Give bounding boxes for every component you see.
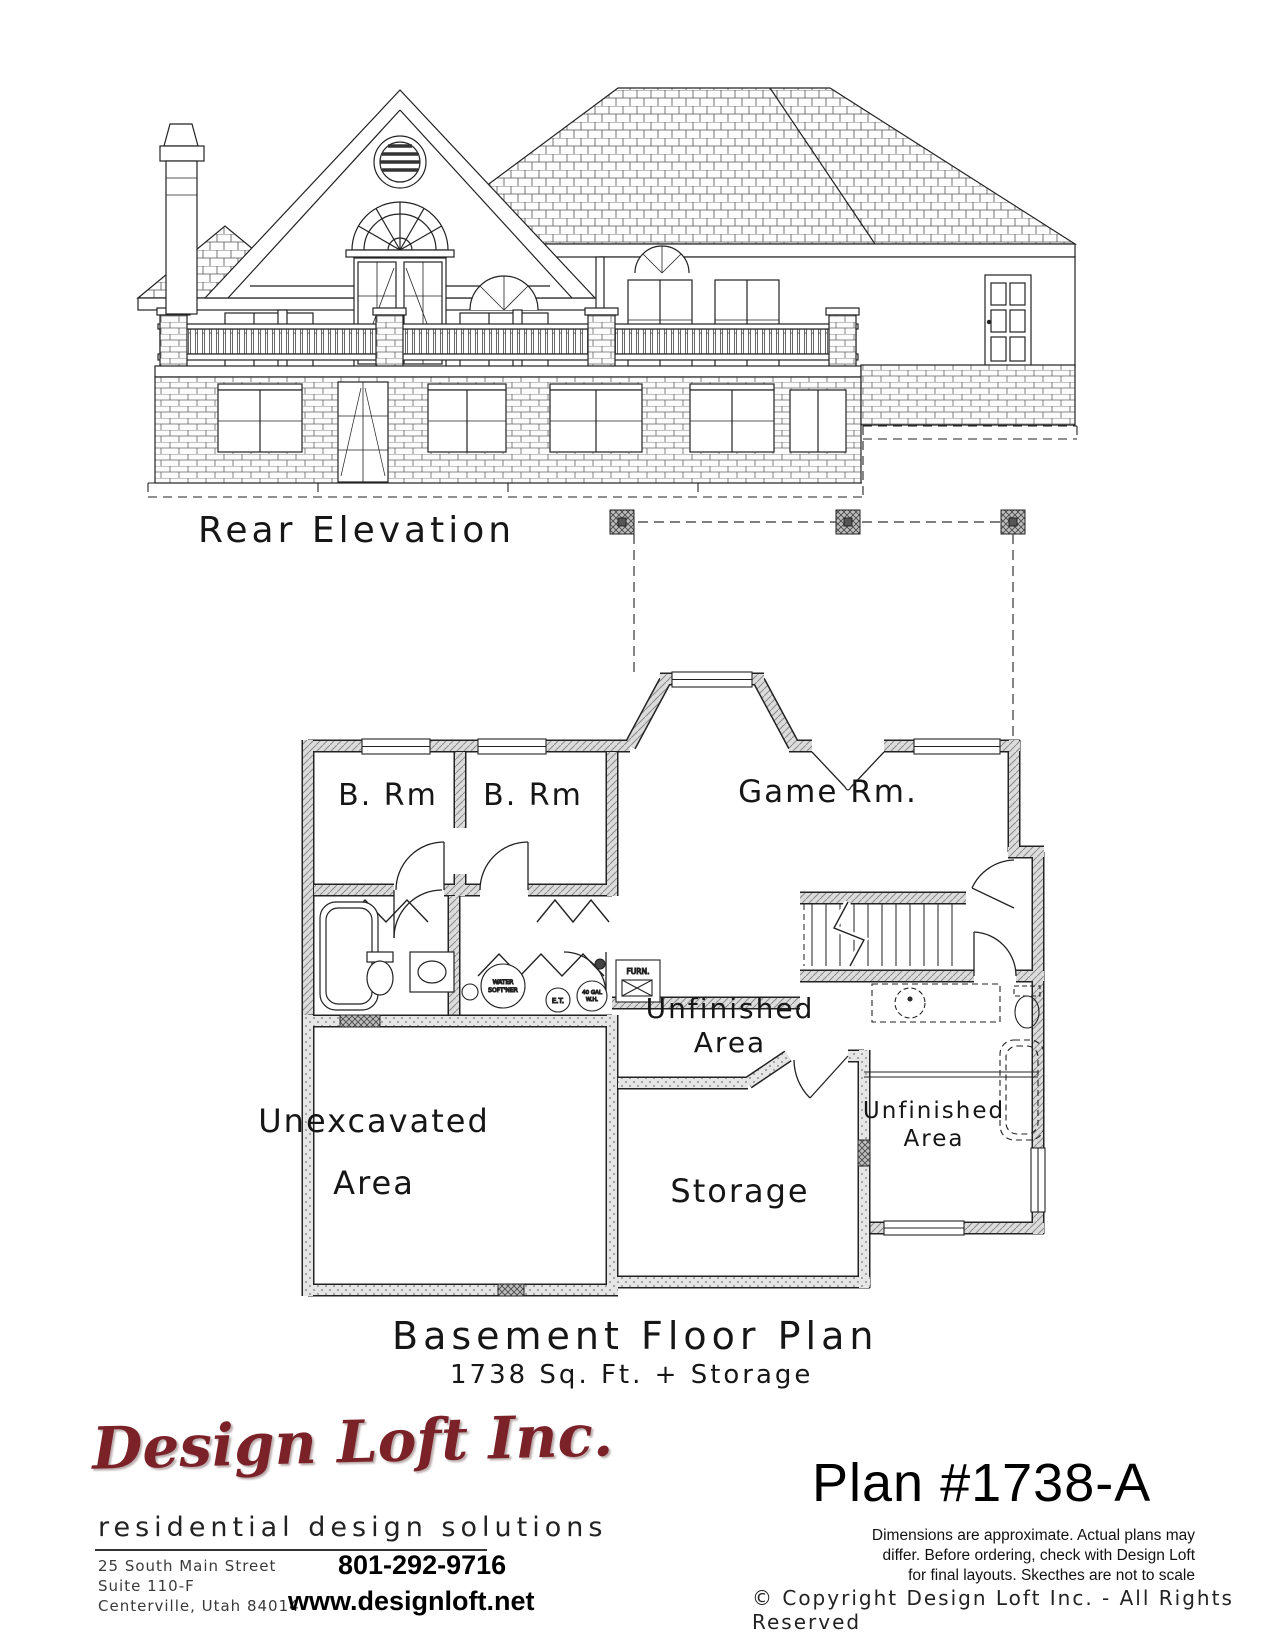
disclaimer-line-1: Dimensions are approximate. Actual plans…: [855, 1526, 1195, 1546]
right-brick-band: [861, 365, 1075, 425]
bedroom-right-label: B. Rm: [483, 778, 583, 813]
unfinished-center-label-1: Unfinished: [646, 992, 815, 1025]
svg-text:40 GAL: 40 GAL: [582, 990, 603, 996]
deck-band: [155, 366, 861, 377]
disclaimer-line-2: differ. Before ordering, check with Desi…: [855, 1546, 1195, 1566]
elevation-linework: [138, 88, 1077, 497]
company-tagline: residential design solutions: [98, 1512, 607, 1543]
unexcavated-label-2: Area: [333, 1164, 415, 1202]
copyright-notice: © Copyright Design Loft Inc. - All Right…: [752, 1586, 1275, 1634]
unfinished-right-label-2: Area: [904, 1126, 965, 1152]
plan-number: Plan #1738-A: [812, 1452, 1151, 1514]
rear-entry-door: [985, 275, 1031, 367]
address-line-3: Centerville, Utah 84014: [98, 1596, 300, 1616]
round-vent: [374, 136, 426, 188]
plan-sheet: Rear Elevation: [0, 0, 1275, 1650]
storage-label: Storage: [670, 1172, 809, 1210]
plan-caption: Basement Floor Plan: [392, 1314, 878, 1358]
stairs: [804, 902, 952, 966]
svg-text:WATER: WATER: [493, 979, 514, 986]
unexcavated-label-1: Unexcavated: [258, 1102, 490, 1140]
foundation-walls: [308, 1015, 870, 1296]
rear-elevation-drawing: [130, 58, 1105, 510]
address-line-2: Suite 110-F: [98, 1576, 300, 1596]
svg-text:W.H.: W.H.: [586, 997, 599, 1003]
basement-floor-plan-drawing: WATER SOFT'NER E.T. 40 GAL W.H. FURN. B.…: [148, 500, 1078, 1315]
svg-text:SOFT'NER: SOFT'NER: [488, 987, 518, 994]
website-url: www.designloft.net: [288, 1586, 535, 1617]
phone-number: 801-292-9716: [338, 1550, 506, 1581]
bedroom-left-label: B. Rm: [338, 778, 438, 813]
svg-text:E.T.: E.T.: [552, 997, 564, 1005]
company-logo: Design Loft Inc.: [91, 1401, 614, 1483]
deck-outline: [610, 510, 1025, 740]
unfinished-right-label-1: Unfinished: [863, 1098, 1005, 1124]
plan-subcaption: 1738 Sq. Ft. + Storage: [450, 1360, 813, 1390]
disclaimer-line-3: for final layouts. Skecthes are not to s…: [855, 1566, 1195, 1586]
company-address: 25 South Main Street Suite 110-F Centerv…: [98, 1556, 300, 1616]
game-room-label: Game Rm.: [738, 774, 918, 810]
disclaimer-text: Dimensions are approximate. Actual plans…: [855, 1526, 1195, 1586]
svg-text:FURN.: FURN.: [626, 967, 649, 976]
unfinished-center-label-2: Area: [694, 1026, 766, 1059]
address-line-1: 25 South Main Street: [98, 1556, 300, 1576]
bathroom-left-fixtures: [320, 902, 454, 1010]
basement-door: [338, 382, 388, 482]
chimney: [160, 124, 204, 314]
